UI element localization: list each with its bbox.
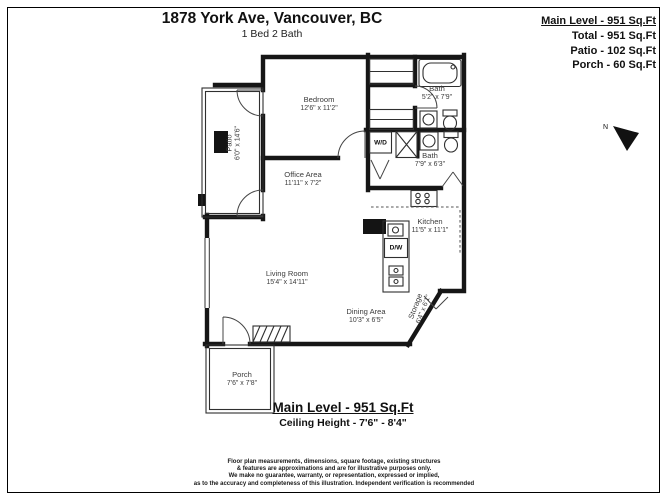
toilet-icon (444, 132, 458, 153)
kitchen-sink-icon (389, 277, 403, 286)
room-label-office: Office Area 11'11" x 7'2" (284, 171, 321, 188)
living-room-window (203, 238, 210, 308)
room-label-patio: Patio 6'0" x 14'6" (225, 126, 242, 160)
room-label-bedroom: Bedroom 12'6" x 11'2" (300, 96, 337, 113)
north-label: N (603, 124, 608, 131)
shower-icon (396, 132, 417, 158)
bathtub-icon (419, 60, 461, 87)
sink-icon (420, 132, 438, 150)
sink-icon (420, 111, 437, 128)
room-label-living: Living Room 15'4" x 14'11" (266, 270, 308, 287)
disclaimer-line: & features are approximations and are fo… (99, 466, 569, 473)
kitchen-sink-icon (389, 266, 403, 275)
washer-dryer-label: W/D (374, 140, 387, 147)
room-label-bath-upper: Bath 5'2" x 7'9" (422, 85, 452, 102)
footer-main-level: Main Level - 951 Sq.Ft (272, 400, 413, 415)
closet (370, 59, 414, 130)
kitchen-counter (383, 221, 409, 292)
kitchen-sink-icon (388, 224, 403, 236)
bath-lower-door (442, 172, 463, 187)
stairs-hatch (253, 326, 290, 342)
disclaimer-line: We make no guarantee, warranty, or repre… (99, 473, 569, 480)
room-label-porch: Porch 7'6" x 7'8" (227, 371, 257, 388)
room-label-dining: Dining Area 10'3" x 6'5" (346, 308, 385, 325)
footer-ceiling-height: Ceiling Height - 7'6" - 8'4" (279, 417, 407, 429)
disclaimer-line: Floor plan measurements, dimensions, squ… (99, 459, 569, 466)
bedroom-door (338, 131, 365, 158)
disclaimer-text: Floor plan measurements, dimensions, squ… (99, 459, 569, 488)
room-label-kitchen: Kitchen 11'5" x 11'1" (412, 218, 449, 235)
laundry-bifold-door (371, 160, 389, 179)
north-arrow-icon: N (603, 124, 639, 151)
room-label-bath-lower: Bath 7'9" x 6'3" (415, 152, 445, 169)
stove-icon (411, 191, 437, 207)
toilet-icon (443, 110, 457, 130)
floorplan-page: 1878 York Ave, Vancouver, BC 1 Bed 2 Bat… (0, 0, 667, 500)
disclaimer-line: as to the accuracy and completeness of t… (99, 481, 569, 488)
dishwasher-label: D/W (390, 245, 403, 252)
porch-door (223, 317, 250, 344)
